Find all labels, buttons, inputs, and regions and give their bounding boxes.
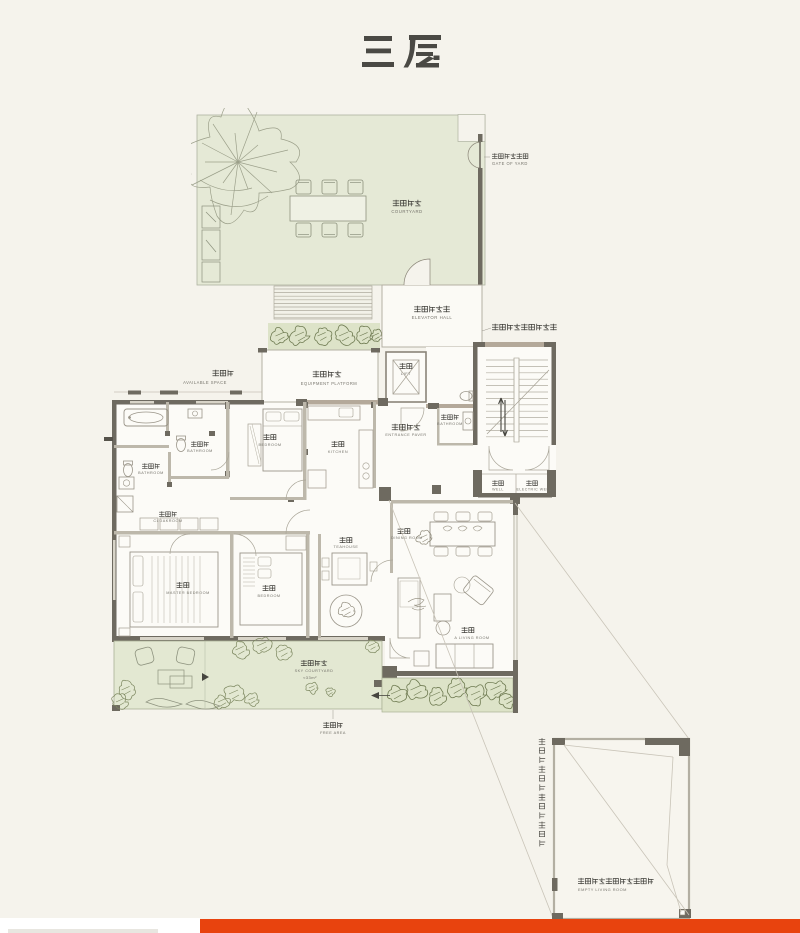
svg-text:BATHROOM: BATHROOM [187,449,213,453]
svg-text:BATHROOM: BATHROOM [437,422,463,426]
svg-text:TEAHOUSE: TEAHOUSE [334,545,359,549]
svg-text:WELL: WELL [492,488,504,492]
svg-text:FREE AREA: FREE AREA [320,731,346,735]
svg-text:A LIVING ROOM: A LIVING ROOM [454,636,489,640]
svg-text:ENTRANCE PAVER: ENTRANCE PAVER [385,433,426,437]
svg-text:EMPTY LIVING ROOM: EMPTY LIVING ROOM [578,887,627,892]
svg-text:LIFT: LIFT [401,371,411,376]
svg-text:ELECTRIC WELL: ELECTRIC WELL [516,488,551,492]
svg-text:BEDROOM: BEDROOM [257,594,280,598]
svg-text:ELEVATOR HALL: ELEVATOR HALL [412,315,453,320]
svg-text:EQUIPMENT PLATFORM: EQUIPMENT PLATFORM [301,381,357,386]
svg-text:≈33m²: ≈33m² [303,675,317,680]
svg-text:BATHROOM: BATHROOM [138,471,164,475]
svg-text:KITCHEN: KITCHEN [328,450,348,454]
svg-text:AVAILABLE SPACE: AVAILABLE SPACE [183,380,227,385]
svg-text:COURTYARD: COURTYARD [391,209,422,214]
svg-text:BEDROOM: BEDROOM [258,443,281,447]
svg-text:DINING ROOM: DINING ROOM [391,536,423,540]
svg-text:GATE OF YARD: GATE OF YARD [492,161,528,166]
svg-text:SKY COURTYARD: SKY COURTYARD [295,669,334,673]
